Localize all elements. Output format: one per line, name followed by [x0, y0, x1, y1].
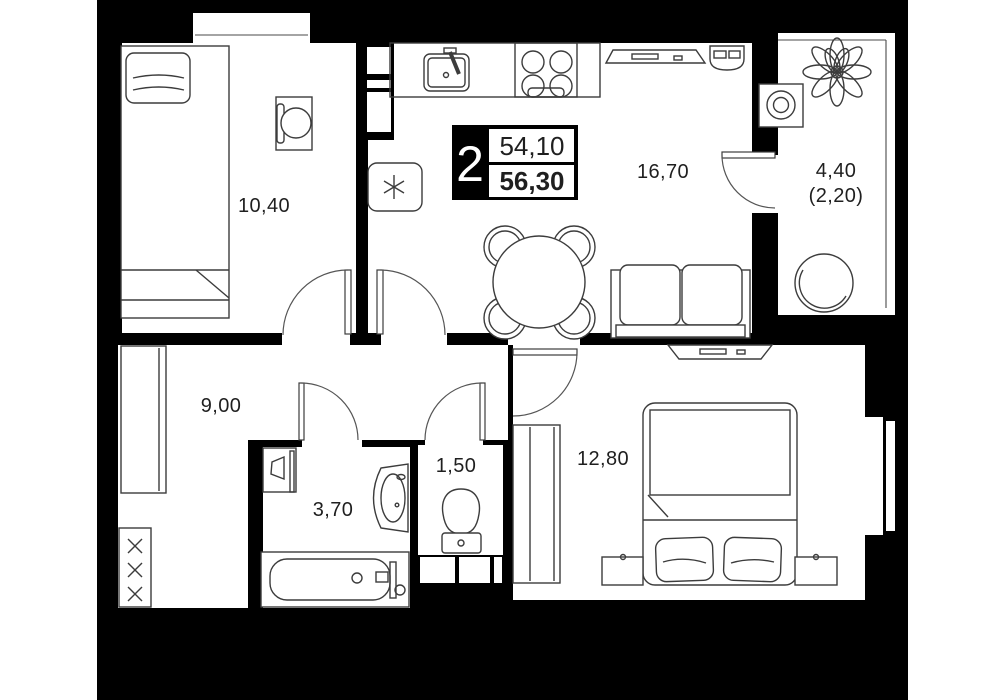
tv-icon — [606, 50, 705, 63]
badge-area-living: 54,10 — [499, 131, 564, 161]
dining-table-icon — [493, 236, 585, 328]
duct-shaft — [367, 80, 391, 132]
window-bedroom-main — [886, 421, 895, 531]
doorway-bedroom-top — [282, 333, 350, 345]
duct-divider — [367, 88, 391, 92]
sofa-icon — [611, 265, 750, 338]
room-label-bedroom-top: 10,40 — [238, 195, 290, 217]
bathtub-icon — [261, 552, 409, 607]
desk-chair-icon — [276, 97, 312, 150]
media-cabinet-icon — [710, 46, 744, 70]
room-label-bedroom-main: 12,80 — [577, 448, 629, 470]
window-bedroom-top — [193, 13, 310, 43]
doorway-toilet — [425, 440, 483, 445]
floor-plan-canvas: 2 54,10 56,30 10,40 16,70 4,40 (2,20) 9,… — [0, 0, 1006, 700]
dining-set-icon — [484, 226, 595, 339]
doorway-bathroom — [302, 440, 362, 447]
area-badge: 2 54,10 56,30 — [452, 125, 578, 200]
doorway-kitchen — [381, 333, 447, 345]
toilet-icon — [442, 489, 481, 553]
nightstand-icon — [602, 555, 643, 586]
room-label-kitchen-living: 16,70 — [637, 161, 689, 183]
round-chair-icon — [795, 254, 853, 312]
wardrobe-hall-icon — [121, 346, 166, 493]
kitchen-sink-icon — [424, 48, 469, 91]
washing-machine-icon — [759, 84, 803, 127]
fridge-icon — [368, 163, 422, 211]
room-label-balcony: 4,40 — [816, 160, 857, 182]
badge-room-count: 2 — [456, 136, 484, 192]
badge-area-total: 56,30 — [499, 166, 564, 196]
window-bedroom-main — [865, 417, 883, 535]
room-label-balcony-reduced: (2,20) — [809, 185, 864, 207]
duct-shaft — [367, 47, 391, 74]
vent-shaft — [420, 557, 455, 583]
room-label-hallway: 9,00 — [201, 395, 242, 417]
wardrobe-bedroom-icon — [513, 425, 560, 583]
floor-plan: 2 54,10 56,30 10,40 16,70 4,40 (2,20) 9,… — [0, 0, 1006, 700]
shoe-cabinet-icon — [119, 528, 151, 607]
room-label-toilet: 1,50 — [436, 455, 477, 477]
nightstand-icon — [795, 555, 837, 586]
room-label-bathroom: 3,70 — [313, 499, 354, 521]
vent-shaft — [459, 557, 490, 583]
tv-bedroom-icon — [668, 345, 772, 359]
shelf-icon — [263, 448, 296, 492]
bathroom-sink-icon — [374, 464, 409, 532]
bed-double-icon — [643, 403, 797, 585]
vent-shaft — [494, 557, 502, 583]
bed-single-icon — [121, 46, 229, 318]
